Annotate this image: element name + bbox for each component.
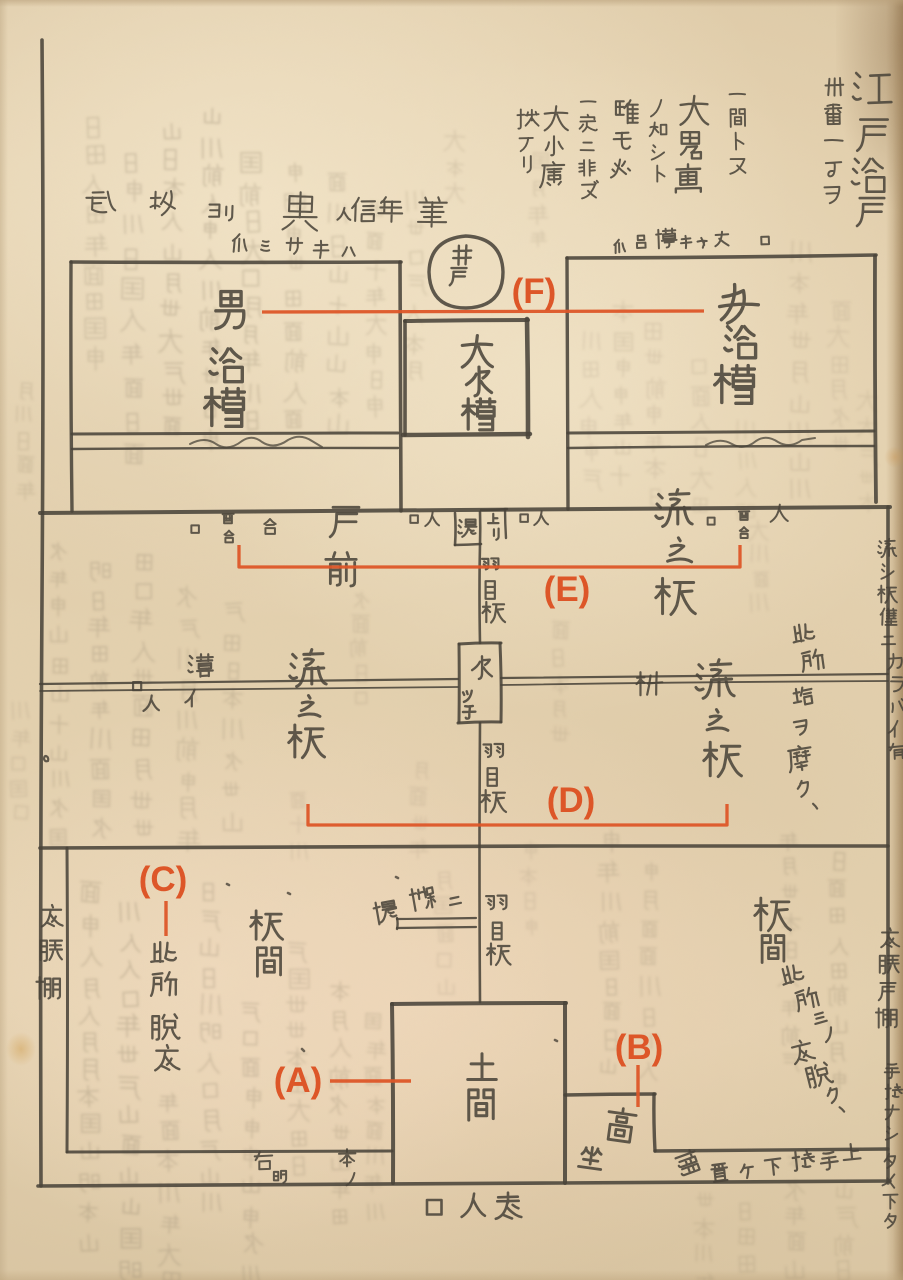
svg-text:(D): (D) xyxy=(547,781,596,820)
svg-text:(A): (A) xyxy=(274,1061,323,1100)
svg-text:(C): (C) xyxy=(139,860,188,899)
svg-text:(F): (F) xyxy=(512,272,557,311)
svg-text:(B): (B) xyxy=(615,1028,664,1067)
svg-text:(E): (E) xyxy=(544,570,591,609)
